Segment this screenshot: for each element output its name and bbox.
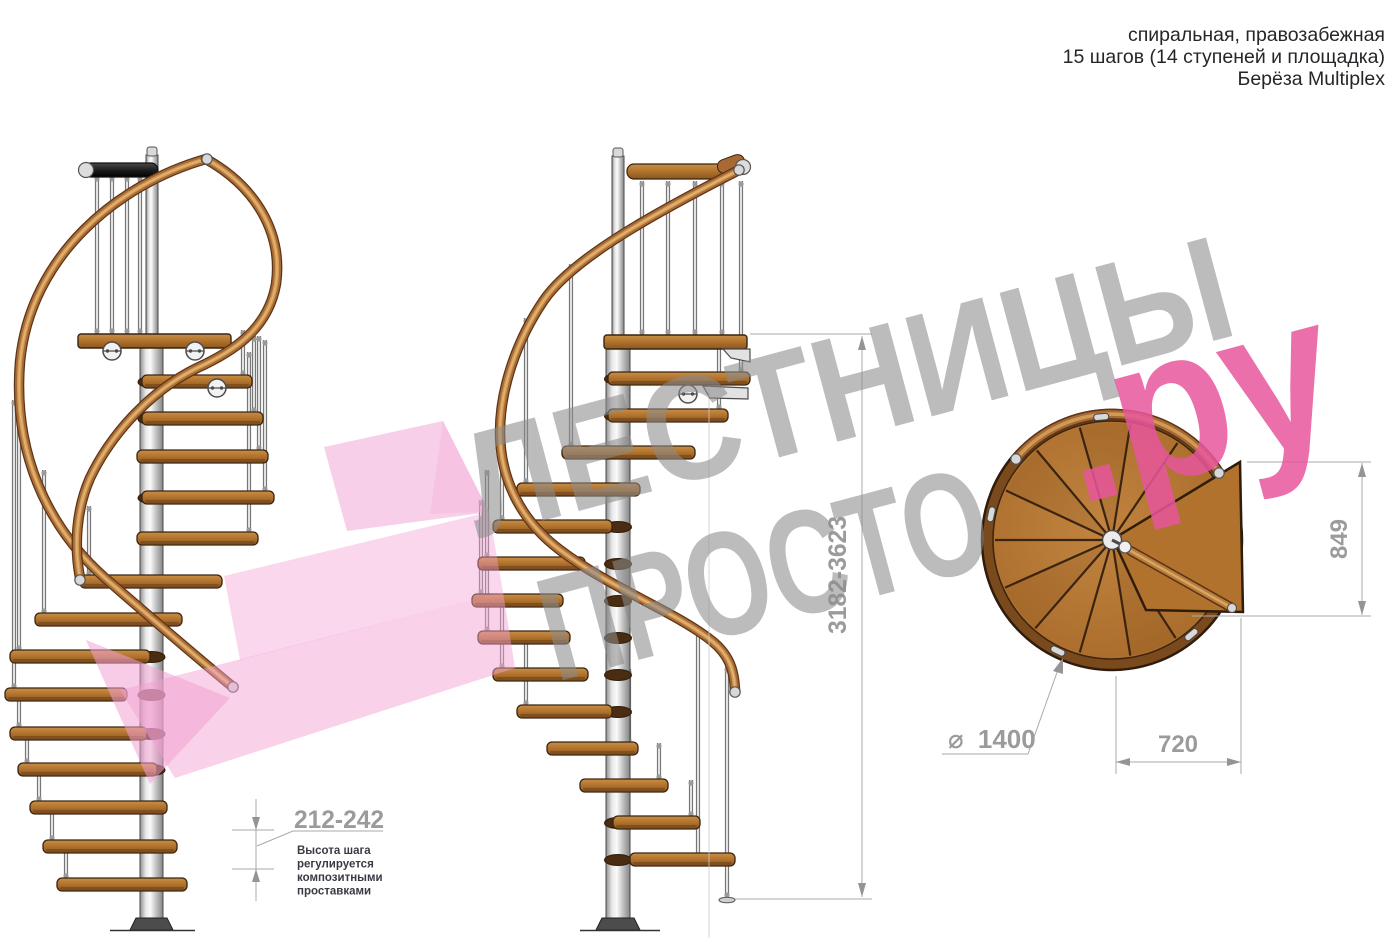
dim-step-height-note: Высота шага регулируется композитными пр… [297,845,383,898]
diameter-symbol: ⌀ [948,725,964,755]
landing-platform [78,334,231,348]
title-line-material: Берёза Multiplex [1238,68,1386,90]
title-line-steps: 15 шагов (14 ступеней и площадка) [1063,46,1385,68]
title-block: спиральная, правозабежная 15 шагов (14 с… [1063,24,1386,90]
mounting-flange [186,342,204,360]
top-guard-rail [84,163,158,177]
pole-spacer [605,855,632,866]
mounting-flange [208,379,226,397]
note-line-2: регулируется [297,859,374,871]
note-line-4: проставками [297,886,371,898]
dim-platform-width-value: 720 [1158,731,1198,758]
note-line-1: Высота шага [297,845,371,857]
title-line-type: спиральная, правозабежная [1128,24,1385,46]
note-line-3: композитными [297,872,383,884]
drawing-page: 3182-3623 212-242 Высота шага регулирует… [0,0,1400,947]
mounting-flange [103,342,121,360]
dim-step-height-value: 212-242 [294,806,384,834]
dim-diameter-value: ⌀ 1400 [948,724,1036,755]
staircase-side-view-left [5,147,277,931]
dim-platform-depth-value: 849 [1326,519,1353,559]
diameter-number: 1400 [978,724,1036,754]
dim-step-height: 212-242 Высота шага регулируется компози… [232,799,384,901]
dim-diameter: ⌀ 1400 [942,658,1063,755]
text-watermark: ЛЕСТНИЦЫ ПРОСТО .ру [444,205,1361,713]
spiral-staircase-technical-drawing: 3182-3623 212-242 Высота шага регулирует… [0,0,1400,947]
rail-knob [79,163,94,178]
